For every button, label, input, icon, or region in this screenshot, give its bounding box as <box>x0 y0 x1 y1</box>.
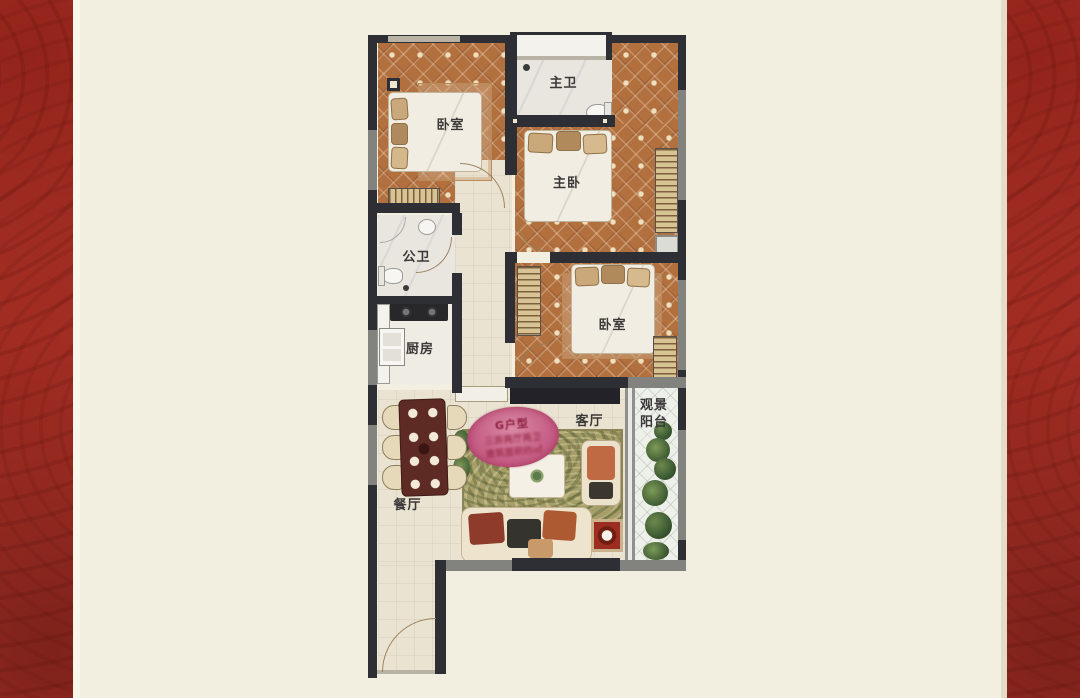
pillow <box>390 97 408 120</box>
room-label-master-bedroom: 主卧 <box>524 176 610 193</box>
pillow <box>582 133 607 154</box>
room-label-public-bathroom: 公卫 <box>378 250 455 267</box>
left-ornament-panel <box>0 0 73 698</box>
room-label-master-bathroom: 主卫 <box>515 76 612 93</box>
pillow <box>627 267 651 287</box>
floor-drain <box>403 285 409 291</box>
room-label-living-room: 客厅 <box>552 414 627 431</box>
pillow <box>575 266 600 286</box>
pillow <box>527 132 553 153</box>
wardrobe-hatch <box>388 188 440 204</box>
window-sill <box>516 56 606 60</box>
wall <box>628 377 686 388</box>
wardrobe-hatch <box>655 148 678 233</box>
wall <box>610 35 686 43</box>
floor-plan: 卧室 主卫 主卧 公卫 厨房 卧室 客厅 观景 阳台 餐厅 G户型 三房两厅两卫… <box>360 30 690 680</box>
pillow <box>556 131 581 151</box>
wall <box>368 203 460 213</box>
sofa-cushion <box>528 539 553 558</box>
washbasin <box>418 219 436 235</box>
wall <box>550 252 678 263</box>
room-label-bedroom-middle: 卧室 <box>565 318 660 335</box>
credenza <box>455 386 508 402</box>
wardrobe-hatch <box>517 266 541 336</box>
window <box>368 330 377 385</box>
shower-fixture <box>523 64 530 71</box>
wall <box>505 263 515 343</box>
window <box>368 425 377 485</box>
page: 卧室 主卫 主卧 公卫 厨房 卧室 客厅 观景 阳台 餐厅 G户型 三房两厅两卫… <box>0 0 1080 698</box>
toilet <box>382 268 403 284</box>
stove <box>390 302 448 321</box>
pillow <box>391 123 408 145</box>
sofa-cushion <box>468 512 505 545</box>
wall <box>435 560 446 674</box>
column-post <box>510 116 520 126</box>
sofa-cushion <box>542 510 577 541</box>
bay-window-top <box>512 34 612 58</box>
window <box>368 130 377 190</box>
dining-chair <box>382 465 402 490</box>
room-label-dining-room: 餐厅 <box>380 498 435 515</box>
wall <box>505 35 517 175</box>
plant <box>643 542 669 560</box>
right-ornament-panel <box>1007 0 1080 698</box>
bay-hatch <box>653 336 677 378</box>
left-edge-strip <box>73 0 80 698</box>
room-label-kitchen: 厨房 <box>385 342 455 359</box>
wall <box>452 273 462 393</box>
toilet-tank <box>378 266 385 286</box>
plant <box>654 458 676 480</box>
wall <box>505 252 517 263</box>
dining-table <box>398 398 448 497</box>
room-label-balcony: 观景 阳台 <box>630 398 678 432</box>
room-label-bedroom-top-left: 卧室 <box>408 118 493 135</box>
column-post <box>387 78 400 91</box>
wall <box>505 377 628 388</box>
wall <box>678 90 686 200</box>
wall <box>678 430 686 540</box>
pillow <box>601 265 625 284</box>
column-post <box>600 116 610 126</box>
wall <box>377 296 455 304</box>
armchair-cushion <box>587 446 615 480</box>
pillow <box>390 147 408 170</box>
wall <box>510 32 612 35</box>
wall <box>505 115 615 127</box>
wall <box>678 280 686 370</box>
armchair-pillow <box>589 482 613 499</box>
wall <box>452 213 462 235</box>
window <box>388 36 460 42</box>
wall <box>512 558 620 571</box>
decor-box <box>591 519 623 552</box>
